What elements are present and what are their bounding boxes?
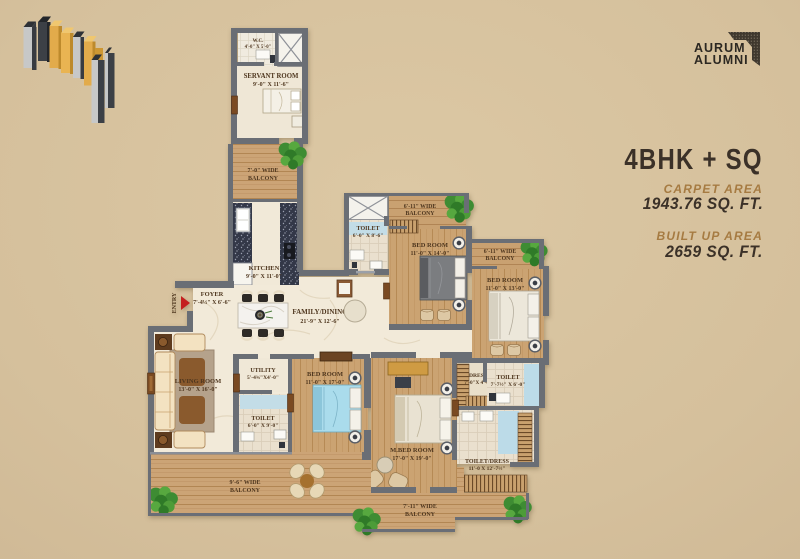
svg-text:BALCONY: BALCONY [405, 512, 436, 518]
svg-text:BALCONY: BALCONY [230, 488, 261, 494]
svg-text:13'-0" X 16'-0": 13'-0" X 16'-0" [178, 387, 217, 393]
svg-text:6'-0" X 8'-6": 6'-0" X 8'-6" [353, 233, 384, 239]
svg-text:6'-11" WIDE: 6'-11" WIDE [484, 249, 517, 255]
svg-text:7'-11" WIDE: 7'-11" WIDE [403, 504, 437, 510]
svg-text:4'-0" X 5'-0": 4'-0" X 5'-0" [245, 45, 272, 50]
svg-text:9'-0" X 11'-6": 9'-0" X 11'-6" [253, 82, 289, 88]
svg-text:TOILET: TOILET [357, 226, 380, 232]
svg-text:7'-4½" X 6'-6": 7'-4½" X 6'-6" [193, 299, 231, 306]
svg-text:BED ROOM: BED ROOM [412, 242, 448, 249]
svg-text:SERVANT ROOM: SERVANT ROOM [244, 73, 299, 80]
svg-text:5'-4¾"X4'-0": 5'-4¾"X4'-0" [247, 374, 279, 381]
svg-text:BALCONY: BALCONY [248, 176, 279, 182]
svg-text:TOILET: TOILET [497, 375, 520, 381]
svg-text:BALCONY: BALCONY [406, 211, 436, 217]
svg-text:17'-0" X 19'-0": 17'-0" X 19'-0" [392, 456, 431, 462]
svg-text:7'-0" WIDE: 7'-0" WIDE [247, 168, 278, 174]
svg-text:BED ROOM: BED ROOM [487, 277, 523, 284]
svg-text:9'-6" WIDE: 9'-6" WIDE [229, 480, 260, 486]
svg-text:BED ROOM: BED ROOM [307, 371, 343, 378]
svg-text:ENTRY: ENTRY [172, 292, 178, 313]
svg-text:M.BED ROOM: M.BED ROOM [390, 447, 434, 454]
svg-text:TOILET/DRESS: TOILET/DRESS [465, 459, 510, 465]
svg-text:11'-0" X 14'-0": 11'-0" X 14'-0" [411, 251, 450, 257]
svg-text:6'-11" WIDE: 6'-11" WIDE [404, 204, 437, 210]
svg-text:LIVING ROOM: LIVING ROOM [175, 378, 221, 385]
svg-text:21'-9" X 12'-6": 21'-9" X 12'-6" [300, 319, 339, 325]
svg-text:W.C.: W.C. [253, 39, 264, 44]
svg-text:6'-0" X 9'-0": 6'-0" X 9'-0" [248, 423, 279, 429]
svg-text:FAMILY/DINING: FAMILY/DINING [292, 308, 348, 316]
svg-text:11'-0 X 12'-7½": 11'-0 X 12'-7½" [469, 465, 506, 472]
svg-text:TOILET: TOILET [252, 416, 275, 422]
svg-text:7'-7½" X 6'-0": 7'-7½" X 6'-0" [491, 381, 526, 388]
svg-text:11'-0" X 13'-0": 11'-0" X 13'-0" [486, 286, 525, 292]
svg-text:FOYER: FOYER [201, 291, 224, 298]
svg-text:UTILITY: UTILITY [250, 368, 276, 374]
svg-text:9'-0" X 11'-0": 9'-0" X 11'-0" [246, 274, 282, 280]
svg-text:BALCONY: BALCONY [486, 256, 516, 262]
svg-text:11'-0" X 17'-0": 11'-0" X 17'-0" [306, 380, 345, 386]
svg-text:KITCHEN: KITCHEN [249, 265, 280, 272]
